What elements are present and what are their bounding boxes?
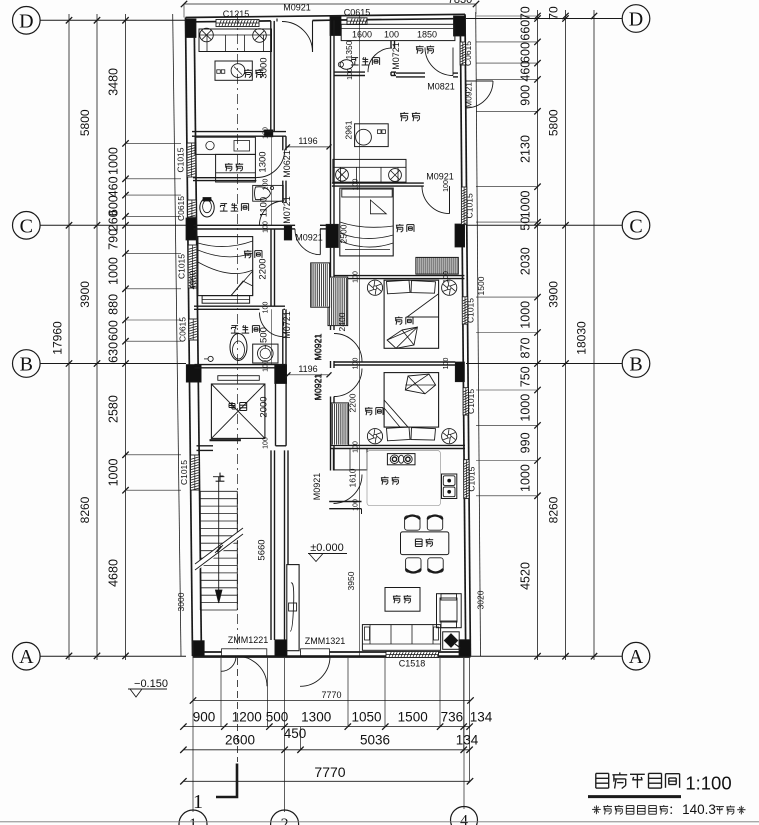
svg-text:1300: 1300 xyxy=(258,151,269,172)
svg-text:ZMM1221: ZMM1221 xyxy=(228,635,269,645)
svg-text:18030: 18030 xyxy=(575,321,589,355)
svg-text:1: 1 xyxy=(193,791,203,813)
svg-text:1850: 1850 xyxy=(417,30,437,40)
svg-text:1196: 1196 xyxy=(298,364,317,374)
svg-text:134: 134 xyxy=(456,733,479,748)
svg-text:100: 100 xyxy=(353,441,360,453)
svg-text:1000: 1000 xyxy=(519,464,533,492)
svg-text:−0.150: −0.150 xyxy=(134,678,168,690)
svg-text:100: 100 xyxy=(263,179,270,191)
svg-text:100: 100 xyxy=(263,437,270,449)
svg-text:100: 100 xyxy=(353,499,360,511)
svg-text:990: 990 xyxy=(519,432,533,453)
svg-text:5800: 5800 xyxy=(547,109,561,136)
svg-text:C0615: C0615 xyxy=(463,41,473,66)
svg-text:C1215: C1215 xyxy=(223,9,250,19)
svg-text:5660: 5660 xyxy=(257,539,268,560)
svg-text:2000: 2000 xyxy=(259,396,270,417)
svg-text:1300: 1300 xyxy=(301,710,331,725)
svg-text:1350: 1350 xyxy=(344,40,354,59)
svg-text:500: 500 xyxy=(259,327,270,343)
svg-text:4960: 4960 xyxy=(188,270,198,289)
svg-text:D: D xyxy=(19,10,33,32)
svg-text:4680: 4680 xyxy=(107,559,121,587)
svg-text:100: 100 xyxy=(443,358,450,370)
svg-text:M0921: M0921 xyxy=(464,82,474,108)
svg-text:100: 100 xyxy=(353,271,360,283)
svg-text:3900: 3900 xyxy=(547,281,561,308)
svg-text:70: 70 xyxy=(547,6,561,20)
svg-text:1:100: 1:100 xyxy=(685,773,731,794)
svg-text:3020: 3020 xyxy=(476,590,486,609)
svg-text:A: A xyxy=(19,646,34,668)
svg-text:1000: 1000 xyxy=(107,459,121,487)
svg-text:C0615: C0615 xyxy=(176,196,186,221)
svg-text:1100: 1100 xyxy=(259,197,270,217)
svg-text:2030: 2030 xyxy=(519,247,533,275)
svg-text:C0615: C0615 xyxy=(344,8,371,18)
svg-text:C1015: C1015 xyxy=(176,147,186,172)
svg-text:100: 100 xyxy=(353,358,360,370)
svg-text:M0721: M0721 xyxy=(282,311,292,339)
svg-text:1000: 1000 xyxy=(107,257,121,285)
svg-text:3900: 3900 xyxy=(78,281,92,308)
svg-text:1000: 1000 xyxy=(519,190,533,218)
svg-text:1000: 1000 xyxy=(519,301,533,329)
svg-text:C1015: C1015 xyxy=(465,298,475,323)
svg-text:M0821: M0821 xyxy=(427,82,455,92)
svg-text:1600: 1600 xyxy=(352,30,372,40)
svg-text:B: B xyxy=(20,354,33,376)
svg-text:260: 260 xyxy=(107,210,121,231)
svg-text:1500: 1500 xyxy=(476,276,486,295)
svg-text:100: 100 xyxy=(443,271,450,283)
svg-text:B: B xyxy=(629,354,642,376)
svg-text:100: 100 xyxy=(443,180,450,192)
svg-text:M0921: M0921 xyxy=(426,172,454,182)
svg-text:100: 100 xyxy=(353,179,360,191)
svg-text:600: 600 xyxy=(519,42,533,63)
svg-text:3000: 3000 xyxy=(259,57,270,78)
svg-text:100: 100 xyxy=(347,68,354,80)
svg-text:M0921: M0921 xyxy=(313,334,323,360)
svg-text:4: 4 xyxy=(460,813,468,825)
svg-text:8260: 8260 xyxy=(78,496,92,523)
svg-text:1196: 1196 xyxy=(298,136,317,146)
svg-text:880: 880 xyxy=(107,294,121,315)
svg-text:450: 450 xyxy=(284,726,307,741)
svg-text:134: 134 xyxy=(470,710,493,725)
svg-text:870: 870 xyxy=(519,338,533,359)
svg-text:460: 460 xyxy=(519,61,533,82)
svg-text:660: 660 xyxy=(519,20,533,41)
svg-text:140.3: 140.3 xyxy=(682,802,716,817)
svg-text:C1518: C1518 xyxy=(399,659,426,669)
svg-text:600: 600 xyxy=(107,320,121,341)
svg-text:1: 1 xyxy=(189,816,197,825)
svg-text:C1015: C1015 xyxy=(466,389,476,414)
svg-text:M0921: M0921 xyxy=(283,3,311,13)
svg-text:900: 900 xyxy=(193,710,216,725)
svg-text:D: D xyxy=(629,9,643,31)
svg-text:1500: 1500 xyxy=(398,710,428,725)
svg-text:C0615: C0615 xyxy=(177,317,187,342)
svg-text:C1015: C1015 xyxy=(177,254,187,279)
svg-text:736: 736 xyxy=(441,710,464,725)
svg-text:M0921: M0921 xyxy=(295,233,323,243)
svg-text:C1015: C1015 xyxy=(179,460,189,485)
svg-text:750: 750 xyxy=(519,366,533,387)
svg-text:1050: 1050 xyxy=(351,710,381,725)
svg-text:2580: 2580 xyxy=(107,395,121,423)
svg-text:C: C xyxy=(629,215,642,237)
svg-text:C1015: C1015 xyxy=(464,193,474,218)
svg-text:2200: 2200 xyxy=(258,258,269,279)
svg-text:50: 50 xyxy=(519,217,533,231)
svg-text:17960: 17960 xyxy=(51,321,65,355)
svg-text:M0921: M0921 xyxy=(312,473,322,501)
svg-text:2130: 2130 xyxy=(519,135,533,163)
svg-text:790: 790 xyxy=(107,229,121,250)
svg-text:M0621: M0621 xyxy=(282,150,292,178)
svg-text:4520: 4520 xyxy=(519,562,533,590)
svg-text:M0721: M0721 xyxy=(391,42,401,70)
svg-text:2500: 2500 xyxy=(339,224,349,243)
svg-text:3480: 3480 xyxy=(107,68,121,96)
svg-text:100: 100 xyxy=(263,302,270,314)
svg-text:5036: 5036 xyxy=(360,733,390,748)
svg-text:C1015: C1015 xyxy=(467,466,477,491)
svg-text:2400: 2400 xyxy=(337,312,347,331)
svg-text:100: 100 xyxy=(263,221,270,233)
svg-text:2600: 2600 xyxy=(225,733,255,748)
svg-text:M0921: M0921 xyxy=(313,374,323,400)
svg-text:1000: 1000 xyxy=(107,147,121,175)
svg-text:7830: 7830 xyxy=(448,0,472,6)
svg-text:2200: 2200 xyxy=(348,393,358,412)
svg-text:100: 100 xyxy=(263,127,270,139)
svg-text:1200: 1200 xyxy=(232,710,262,725)
svg-text:1000: 1000 xyxy=(519,394,533,422)
svg-text:8260: 8260 xyxy=(547,496,561,523)
svg-text:2: 2 xyxy=(281,816,289,825)
svg-text:：: ： xyxy=(669,805,680,817)
svg-text:5800: 5800 xyxy=(78,109,92,136)
svg-text:C: C xyxy=(20,215,33,237)
svg-text:630: 630 xyxy=(107,342,121,363)
svg-text:3950: 3950 xyxy=(346,571,356,590)
svg-text:460: 460 xyxy=(107,176,121,197)
svg-text:7770: 7770 xyxy=(314,764,345,780)
svg-text:A: A xyxy=(629,646,644,668)
svg-text:100: 100 xyxy=(263,360,270,372)
svg-text:2961: 2961 xyxy=(344,120,354,139)
svg-text:70: 70 xyxy=(519,6,533,20)
svg-text:3000: 3000 xyxy=(176,592,186,611)
svg-text:ZMM1321: ZMM1321 xyxy=(305,636,346,646)
svg-text:±0.000: ±0.000 xyxy=(310,542,344,554)
svg-text:900: 900 xyxy=(519,85,533,106)
svg-text:100: 100 xyxy=(384,30,399,40)
svg-text:1610: 1610 xyxy=(348,468,358,487)
svg-text:7770: 7770 xyxy=(321,690,341,700)
